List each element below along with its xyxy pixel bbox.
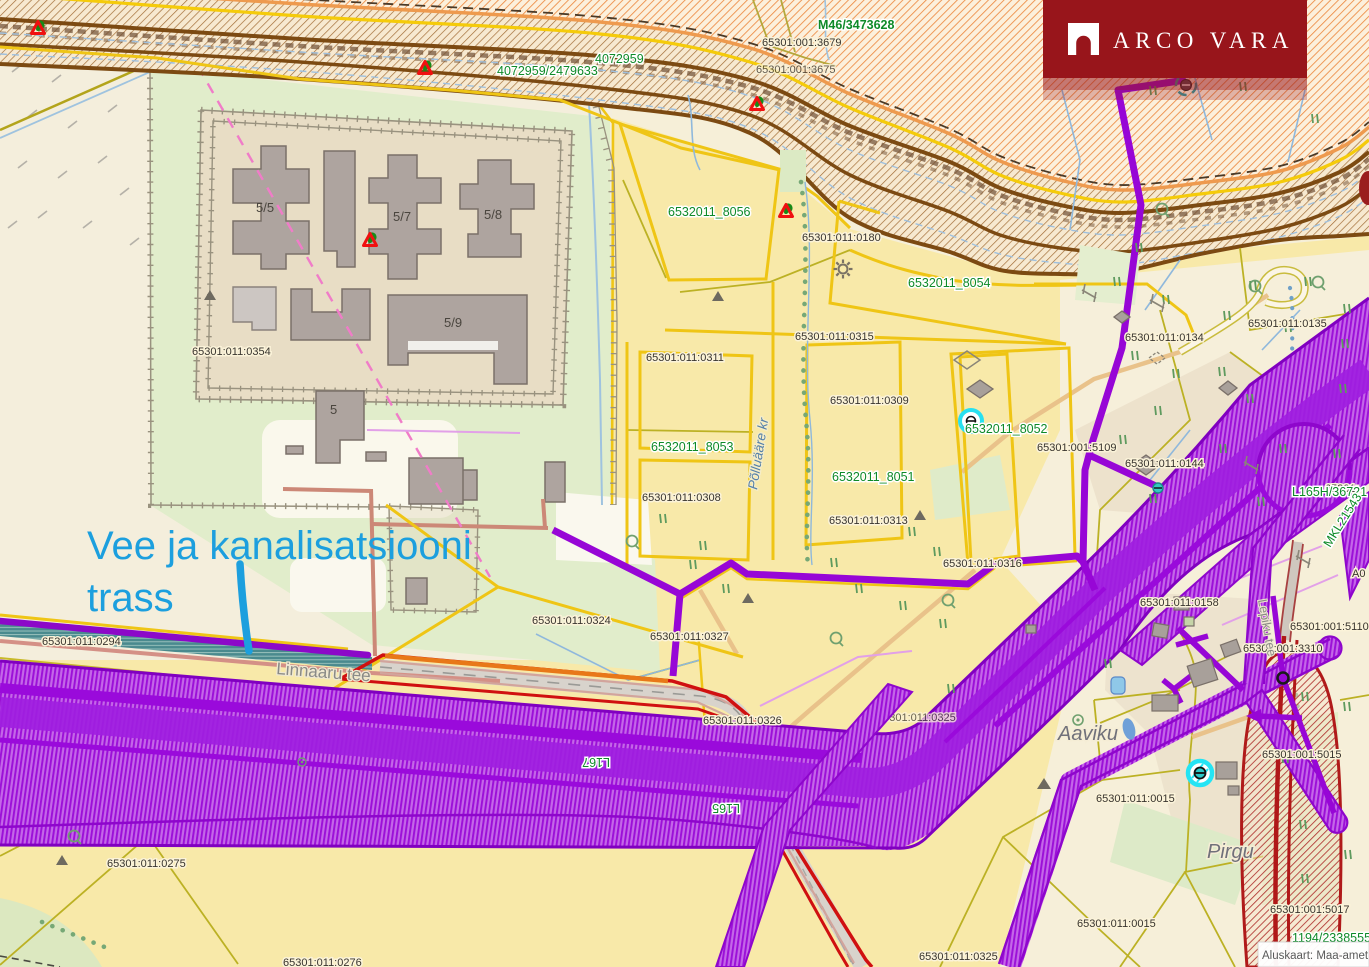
- svg-text:L165: L165: [712, 801, 740, 815]
- svg-text:65301:011:0134: 65301:011:0134: [1125, 332, 1204, 344]
- svg-text:5/8: 5/8: [484, 207, 502, 222]
- svg-text:65301:011:0309: 65301:011:0309: [830, 395, 909, 407]
- svg-text:65301:001:3310: 65301:001:3310: [1243, 643, 1323, 655]
- svg-text:65301:011:0308: 65301:011:0308: [642, 492, 721, 504]
- svg-text:4072959/2479633: 4072959/2479633: [497, 64, 598, 78]
- svg-text:M46/3473628: M46/3473628: [818, 18, 895, 32]
- svg-text:65301:011:0326: 65301:011:0326: [703, 715, 782, 727]
- svg-text:65301:011:0324: 65301:011:0324: [532, 615, 611, 627]
- svg-text:65301:011:0135: 65301:011:0135: [1248, 318, 1327, 330]
- svg-text:5: 5: [330, 402, 337, 417]
- svg-text:trass: trass: [87, 576, 174, 620]
- svg-text:Pirgu: Pirgu: [1207, 841, 1254, 863]
- svg-text:4072959: 4072959: [595, 52, 644, 66]
- svg-text:65301:001:3675: 65301:001:3675: [756, 64, 836, 76]
- svg-text:5/7: 5/7: [393, 209, 411, 224]
- svg-text:65301:011:0180: 65301:011:0180: [802, 232, 881, 244]
- svg-text:6532011_8054: 6532011_8054: [908, 276, 991, 290]
- svg-text:65301:011:0015: 65301:011:0015: [1096, 793, 1175, 805]
- svg-text:Vee ja kanalisatsiooni: Vee ja kanalisatsiooni: [87, 524, 472, 568]
- svg-text:65301:011:0315: 65301:011:0315: [795, 331, 874, 343]
- svg-text:A0: A0: [1352, 568, 1365, 580]
- svg-text:65301:011:0311: 65301:011:0311: [646, 352, 724, 364]
- svg-text:65301:001:5017: 65301:001:5017: [1270, 904, 1350, 916]
- svg-text:65301:011:0327: 65301:011:0327: [650, 631, 729, 643]
- svg-text:6532011_8052: 6532011_8052: [965, 422, 1048, 436]
- svg-text:6532011_8051: 6532011_8051: [832, 470, 915, 484]
- svg-text:65301:011:0316: 65301:011:0316: [943, 558, 1022, 570]
- svg-text:65301:001:5109: 65301:001:5109: [1037, 442, 1117, 454]
- svg-text:ARCO VARA: ARCO VARA: [1113, 28, 1294, 53]
- svg-text:65301:001:5015: 65301:001:5015: [1262, 749, 1342, 761]
- svg-text:65301:011:0354: 65301:011:0354: [192, 346, 271, 358]
- svg-text:6532011_8056: 6532011_8056: [668, 205, 751, 219]
- svg-text:65301:011:0275: 65301:011:0275: [107, 858, 186, 870]
- svg-text:65301:001:5110: 65301:001:5110: [1290, 621, 1369, 633]
- svg-text:65301:011:0313: 65301:011:0313: [829, 515, 908, 527]
- svg-text:65301:011:0294: 65301:011:0294: [42, 636, 121, 648]
- svg-text:65301:001:3679: 65301:001:3679: [762, 37, 842, 49]
- svg-text:Aaviku: Aaviku: [1057, 723, 1118, 745]
- svg-text:65301:011:0015: 65301:011:0015: [1077, 918, 1156, 930]
- svg-text:6532011_8053: 6532011_8053: [651, 440, 734, 454]
- svg-text:5/5: 5/5: [256, 200, 274, 215]
- svg-text:5/9: 5/9: [444, 315, 462, 330]
- svg-text:65301:011:0158: 65301:011:0158: [1140, 597, 1219, 609]
- svg-text:65301:011:0325: 65301:011:0325: [919, 951, 998, 963]
- svg-text:65301:011:0276: 65301:011:0276: [283, 957, 362, 967]
- svg-text:L167: L167: [582, 755, 610, 769]
- svg-text:65301:011:0144: 65301:011:0144: [1125, 458, 1204, 470]
- svg-text:Aluskaart: Maa-amet: Aluskaart: Maa-amet: [1262, 950, 1369, 962]
